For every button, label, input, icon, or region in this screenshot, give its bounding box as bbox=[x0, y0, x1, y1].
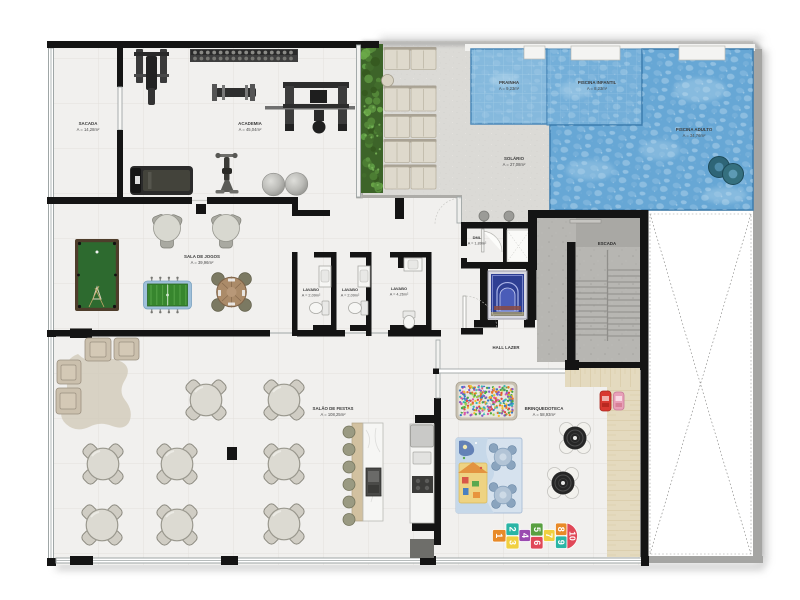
svg-text:A = 14,28m²: A = 14,28m² bbox=[77, 127, 100, 132]
svg-text:A = 9,23m²: A = 9,23m² bbox=[499, 86, 520, 91]
svg-text:A = 4,26m²: A = 4,26m² bbox=[390, 293, 409, 297]
svg-text:6: 6 bbox=[532, 540, 542, 545]
svg-text:A = 8,23m²: A = 8,23m² bbox=[587, 86, 608, 91]
svg-text:A = 27,08m²: A = 27,08m² bbox=[503, 162, 526, 167]
svg-text:ESCADA: ESCADA bbox=[598, 241, 616, 246]
svg-text:A = 39,96m²: A = 39,96m² bbox=[191, 260, 214, 265]
svg-text:9: 9 bbox=[556, 540, 566, 545]
svg-text:SALA DE JOGOS: SALA DE JOGOS bbox=[184, 254, 220, 259]
svg-text:PISCINA ADULTO: PISCINA ADULTO bbox=[676, 127, 713, 132]
svg-text:LAVABO: LAVABO bbox=[391, 286, 407, 291]
svg-text:ACADEMIA: ACADEMIA bbox=[238, 121, 262, 126]
svg-text:A = 45,04m²: A = 45,04m² bbox=[239, 127, 262, 132]
svg-text:LAVABO: LAVABO bbox=[303, 287, 319, 292]
svg-text:LAVABO: LAVABO bbox=[342, 287, 358, 292]
svg-text:BRINQUEDOTECA: BRINQUEDOTECA bbox=[525, 406, 565, 411]
svg-text:A = 2,09m²: A = 2,09m² bbox=[341, 294, 360, 298]
svg-text:8: 8 bbox=[556, 527, 566, 532]
svg-text:7: 7 bbox=[544, 533, 554, 538]
svg-text:DML: DML bbox=[473, 235, 482, 240]
svg-text:2: 2 bbox=[508, 527, 518, 532]
svg-text:A = 58,93m²: A = 58,93m² bbox=[533, 412, 556, 417]
svg-text:HALL LAZER: HALL LAZER bbox=[493, 345, 521, 350]
svg-text:A = 2,09m²: A = 2,09m² bbox=[302, 294, 321, 298]
svg-text:A = 34,76m²: A = 34,76m² bbox=[683, 133, 706, 138]
svg-text:SOLÁRIO: SOLÁRIO bbox=[504, 156, 525, 161]
svg-text:1: 1 bbox=[494, 533, 504, 538]
svg-text:3: 3 bbox=[508, 540, 518, 545]
svg-text:PRAINHA: PRAINHA bbox=[499, 80, 520, 85]
svg-text:5: 5 bbox=[532, 527, 542, 532]
svg-text:10: 10 bbox=[568, 531, 578, 541]
svg-text:A = 1,89m²: A = 1,89m² bbox=[468, 242, 487, 246]
svg-text:SALÃO DE FESTAS: SALÃO DE FESTAS bbox=[313, 406, 354, 411]
svg-text:PISCINA INFANTIL: PISCINA INFANTIL bbox=[578, 80, 617, 85]
svg-text:4: 4 bbox=[520, 533, 530, 538]
svg-text:SACADA: SACADA bbox=[79, 121, 99, 126]
svg-text:A = 108,25m²: A = 108,25m² bbox=[320, 412, 346, 417]
